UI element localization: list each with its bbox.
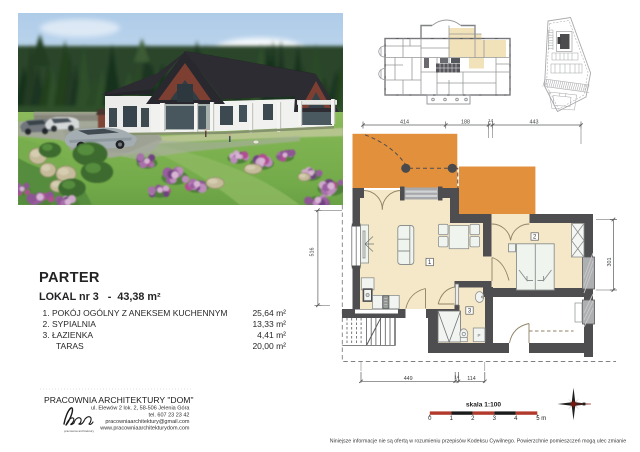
svg-text:14: 14: [488, 118, 494, 123]
svg-text:2. SYPIALNIA: 2. SYPIALNIA: [43, 319, 97, 329]
svg-text:3: 3: [493, 416, 497, 422]
svg-text:ul. Elewów 2 lok. 2, 58-506 Je: ul. Elewów 2 lok. 2, 58-506 Jelenia Góra: [91, 406, 190, 412]
svg-text:13,33 m²: 13,33 m²: [252, 319, 286, 329]
svg-text:1. POKÓJ OGÓLNY Z ANEKSEM KUCH: 1. POKÓJ OGÓLNY Z ANEKSEM KUCHENNYM: [43, 308, 228, 318]
svg-text:www.pracowniaarchitekturydom.c: www.pracowniaarchitekturydom.com: [99, 426, 190, 432]
svg-text:tel. 607 23 23 42: tel. 607 23 23 42: [149, 412, 190, 418]
svg-text:20,00 m²: 20,00 m²: [252, 341, 286, 351]
svg-text:P: P: [478, 333, 481, 338]
svg-text:0: 0: [428, 416, 432, 422]
svg-text:25,64 m²: 25,64 m²: [252, 308, 286, 318]
svg-text:3. ŁAZIENKA: 3. ŁAZIENKA: [43, 330, 94, 340]
svg-text:114: 114: [467, 376, 476, 382]
svg-text:2: 2: [471, 416, 475, 422]
svg-text:443: 443: [530, 119, 539, 125]
svg-text:TARAS: TARAS: [56, 341, 84, 351]
svg-text:188: 188: [461, 119, 470, 125]
svg-text:4: 4: [514, 416, 518, 422]
svg-text:4,41 m²: 4,41 m²: [257, 330, 286, 340]
svg-text:pracownia architektury: pracownia architektury: [64, 429, 95, 433]
svg-text:LOKAL nr 3 - 43,38 m²: LOKAL nr 3 - 43,38 m²: [39, 291, 161, 303]
svg-text:301: 301: [607, 258, 613, 267]
svg-text:PRACOWNIA ARCHITEKTURY "DOM": PRACOWNIA ARCHITEKTURY "DOM": [44, 395, 194, 405]
svg-text:1: 1: [450, 416, 454, 422]
svg-text:516: 516: [310, 248, 316, 257]
svg-text:pracowniaarchitektury@gmail.co: pracowniaarchitektury@gmail.com: [105, 419, 190, 425]
svg-text:Niniejsze informacje nie są of: Niniejsze informacje nie są ofertą w roz…: [330, 438, 627, 444]
svg-text:414: 414: [400, 119, 409, 125]
svg-text:5 m: 5 m: [536, 416, 546, 422]
svg-text:14: 14: [454, 374, 460, 379]
svg-text:449: 449: [404, 376, 413, 382]
svg-text:skala 1:100: skala 1:100: [466, 402, 502, 409]
svg-text:PARTER: PARTER: [39, 270, 100, 286]
